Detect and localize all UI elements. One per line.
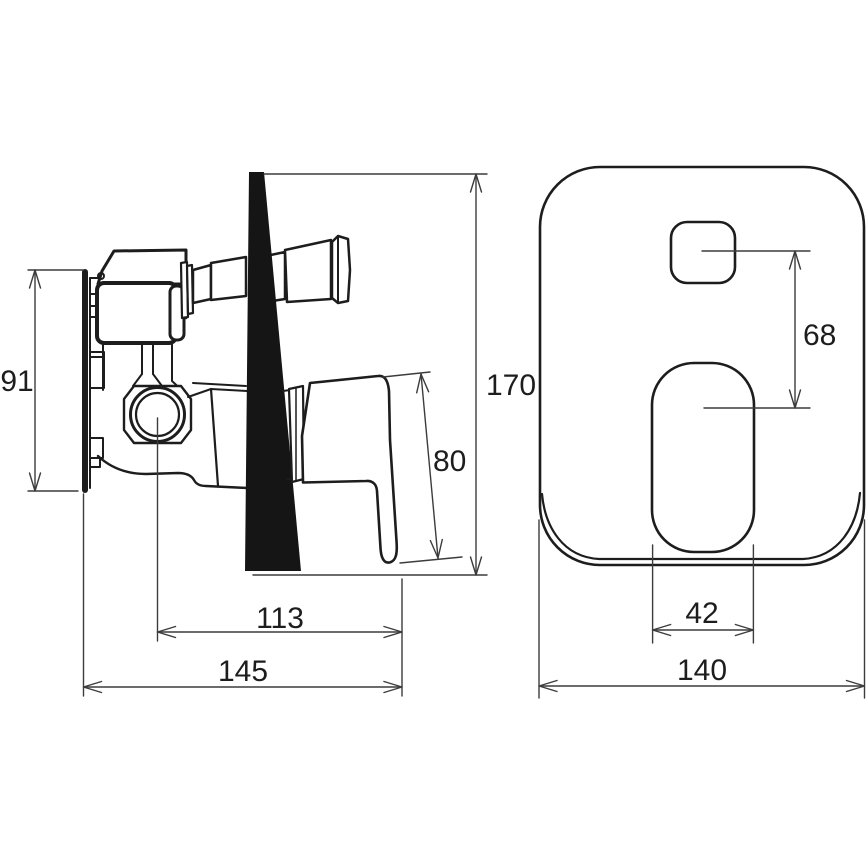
- dim-170-label: 170: [486, 369, 536, 402]
- lever-opening: [652, 363, 754, 552]
- dim-140-label: 140: [677, 654, 727, 687]
- technical-drawing-canvas: 91 170 80 113 145: [0, 0, 868, 868]
- handle-side: [283, 376, 397, 563]
- dim-145-label: 145: [218, 655, 268, 688]
- dim-42-label: 42: [685, 597, 718, 630]
- dimension-91: 91: [0, 270, 83, 491]
- diverter-opening: [671, 222, 735, 283]
- dim-91-label: 91: [0, 365, 33, 398]
- lever-handle: [302, 376, 397, 563]
- dim-68-label: 68: [803, 319, 836, 352]
- wall-section: [245, 172, 301, 571]
- front-view: 68 42 140: [539, 167, 865, 698]
- dim-113-label: 113: [256, 602, 304, 635]
- valve-body: [90, 250, 193, 394]
- side-view: 91 170 80 113 145: [0, 172, 536, 696]
- dim-80-label: 80: [433, 445, 466, 478]
- dimension-145: 145: [84, 494, 403, 696]
